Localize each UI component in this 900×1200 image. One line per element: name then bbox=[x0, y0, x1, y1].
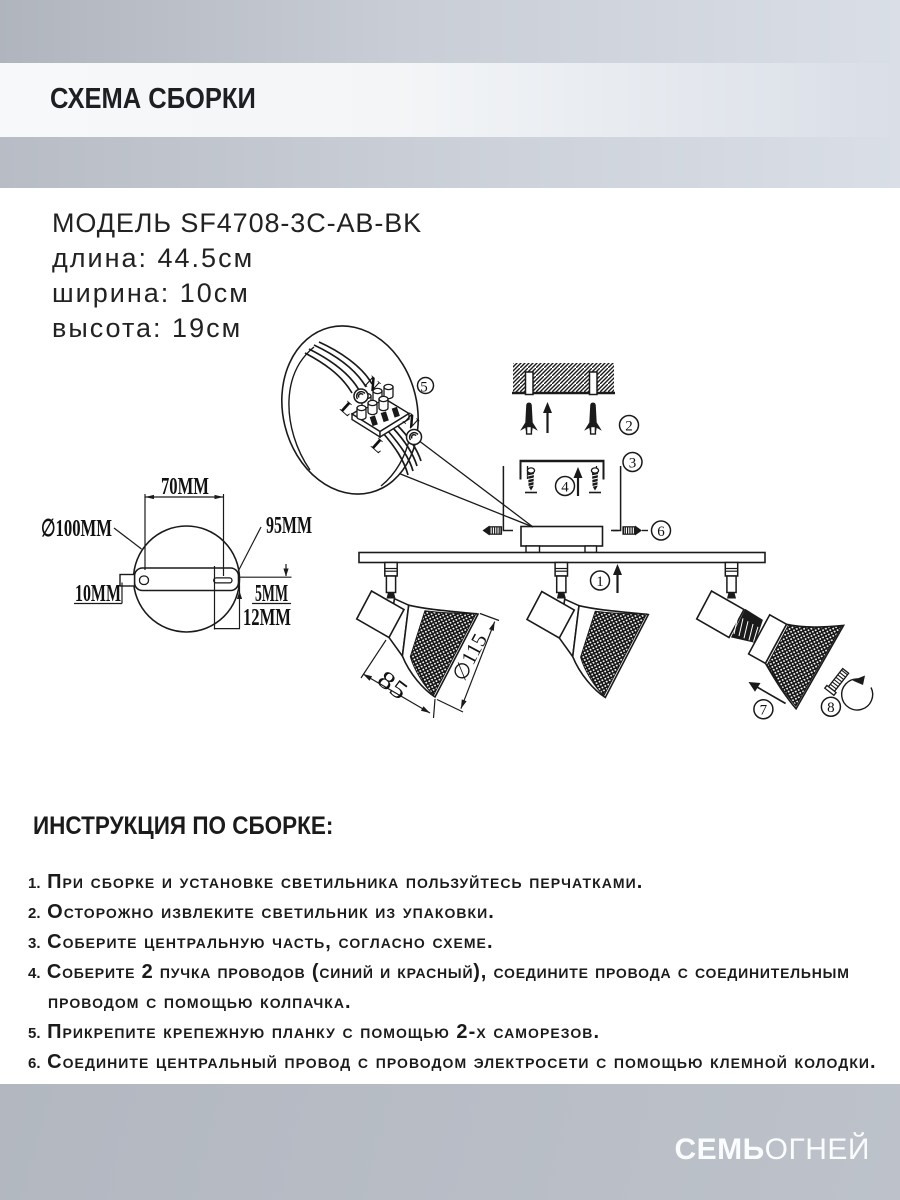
svg-text:8: 8 bbox=[827, 700, 835, 716]
svg-text:5MM: 5MM bbox=[255, 581, 288, 607]
svg-text:2: 2 bbox=[625, 419, 633, 435]
svg-text:95MM: 95MM bbox=[266, 513, 312, 539]
svg-text:12MM: 12MM bbox=[243, 605, 291, 631]
svg-text:1: 1 bbox=[596, 574, 604, 590]
svg-text:4: 4 bbox=[561, 480, 569, 496]
svg-text:70MM: 70MM bbox=[161, 474, 209, 500]
svg-text:5: 5 bbox=[420, 380, 428, 396]
svg-text:6: 6 bbox=[657, 524, 665, 540]
svg-text:7: 7 bbox=[760, 703, 768, 719]
svg-text:10MM: 10MM bbox=[75, 581, 121, 607]
svg-text:3: 3 bbox=[629, 456, 637, 472]
svg-text:∅100MM: ∅100MM bbox=[41, 516, 112, 542]
